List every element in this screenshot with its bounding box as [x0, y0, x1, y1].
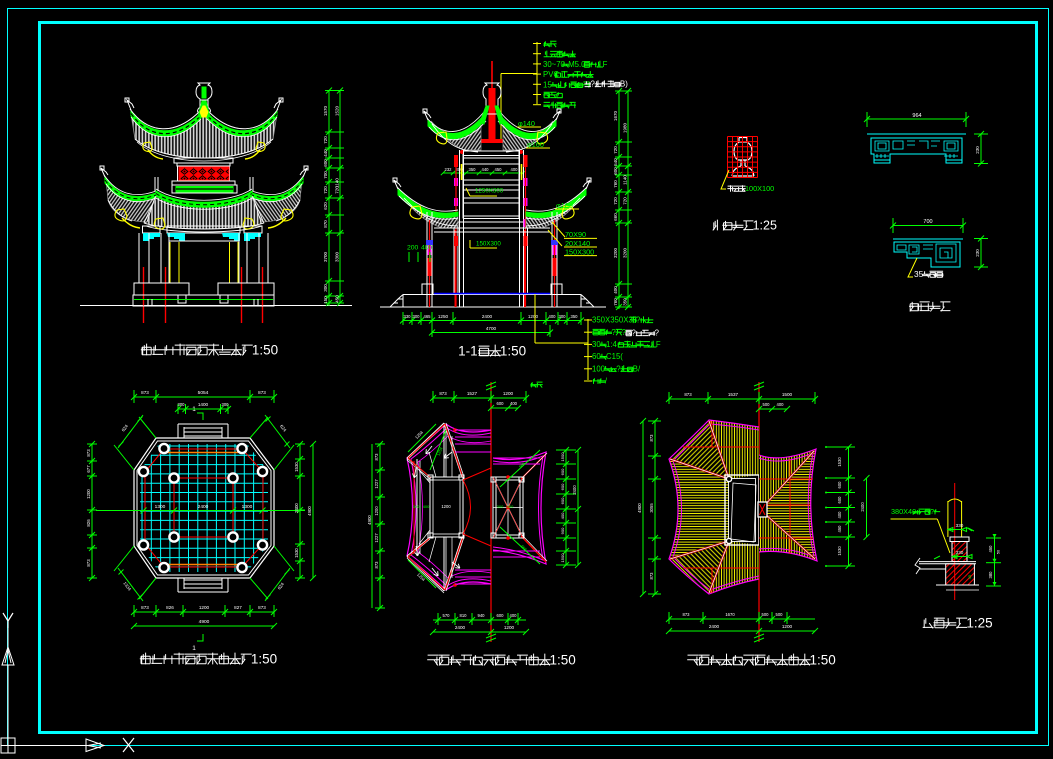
svg-text:4900: 4900 — [367, 515, 372, 525]
svg-text:35: 35 — [914, 269, 924, 279]
svg-text:400: 400 — [549, 314, 557, 319]
svg-text:150X300: 150X300 — [476, 240, 501, 247]
svg-text:660: 660 — [613, 213, 618, 221]
svg-text:300: 300 — [559, 314, 567, 319]
svg-text:450: 450 — [837, 525, 842, 533]
svg-text:1200: 1200 — [86, 489, 91, 499]
svg-text:350: 350 — [571, 314, 579, 319]
svg-text:1670: 1670 — [725, 612, 735, 617]
svg-text:1530: 1530 — [837, 546, 842, 556]
svg-text:B): B) — [620, 80, 628, 89]
svg-text:1140: 1140 — [623, 175, 628, 185]
svg-text:4900: 4900 — [307, 506, 312, 516]
svg-text:300: 300 — [507, 504, 514, 509]
svg-text:1250X300: 1250X300 — [475, 187, 504, 194]
svg-text:826: 826 — [166, 605, 174, 610]
svg-text:3300: 3300 — [335, 251, 340, 262]
svg-text:1530: 1530 — [837, 457, 842, 467]
svg-text:1200: 1200 — [441, 504, 451, 509]
svg-text:100X100: 100X100 — [745, 184, 774, 193]
svg-text:540: 540 — [613, 158, 618, 166]
svg-text:900: 900 — [560, 527, 565, 534]
svg-text:200: 200 — [407, 245, 419, 252]
svg-text:45: 45 — [968, 575, 972, 579]
svg-text:3055: 3055 — [649, 503, 654, 513]
svg-text:232: 232 — [445, 167, 453, 172]
svg-text:1: 1 — [192, 645, 196, 652]
svg-text:380: 380 — [988, 571, 993, 579]
svg-text:500: 500 — [762, 612, 770, 617]
svg-text:440: 440 — [482, 167, 490, 172]
svg-text:400: 400 — [423, 504, 430, 509]
svg-text:1200: 1200 — [503, 391, 514, 396]
svg-text:873: 873 — [374, 561, 379, 569]
svg-text:350: 350 — [469, 167, 477, 172]
svg-text:150X300: 150X300 — [565, 247, 594, 256]
svg-text:2400: 2400 — [482, 314, 493, 319]
svg-text:1:50: 1:50 — [252, 342, 278, 357]
svg-text:4900: 4900 — [199, 619, 210, 625]
svg-text:600: 600 — [497, 401, 505, 406]
svg-text:760: 760 — [613, 180, 618, 188]
svg-text:1227: 1227 — [374, 479, 379, 489]
svg-text:465: 465 — [424, 314, 432, 319]
svg-text:2400: 2400 — [860, 502, 865, 512]
svg-text:1200: 1200 — [199, 605, 210, 610]
svg-text:810: 810 — [460, 613, 468, 618]
svg-text:1400: 1400 — [198, 402, 209, 407]
svg-text:720: 720 — [323, 186, 328, 194]
svg-text:4900: 4900 — [637, 503, 642, 513]
svg-text:2400: 2400 — [455, 625, 466, 630]
svg-text:150: 150 — [323, 296, 328, 304]
svg-text:300: 300 — [178, 402, 186, 407]
svg-text:440: 440 — [323, 149, 328, 157]
svg-text:400: 400 — [777, 402, 785, 407]
svg-text:1:50: 1:50 — [550, 652, 576, 667]
svg-text:F: F — [656, 340, 661, 349]
svg-text:720: 720 — [613, 146, 618, 154]
svg-text:1:25: 1:25 — [966, 615, 992, 630]
svg-text:873: 873 — [86, 559, 91, 567]
svg-text:873: 873 — [649, 572, 654, 580]
svg-text:720: 720 — [323, 136, 328, 144]
svg-text:50: 50 — [997, 550, 1001, 554]
svg-text:1200: 1200 — [504, 625, 515, 630]
svg-text:2400: 2400 — [198, 504, 209, 510]
svg-text:380X40: 380X40 — [891, 507, 916, 516]
svg-text:400: 400 — [511, 167, 519, 172]
svg-text:1980: 1980 — [623, 122, 628, 133]
svg-text:3700: 3700 — [323, 251, 328, 262]
svg-text:400: 400 — [560, 512, 565, 519]
svg-text:5054: 5054 — [198, 390, 209, 396]
svg-text:700: 700 — [323, 171, 328, 179]
svg-text:400: 400 — [510, 401, 518, 406]
svg-text:873: 873 — [86, 449, 91, 457]
svg-text:1:50: 1:50 — [500, 343, 526, 358]
svg-text:720: 720 — [335, 186, 340, 194]
svg-text:873: 873 — [439, 391, 447, 396]
svg-text:1500: 1500 — [560, 452, 565, 462]
svg-text:600: 600 — [323, 159, 328, 167]
svg-text:600: 600 — [613, 167, 618, 175]
svg-text:826: 826 — [86, 519, 91, 527]
svg-text:600: 600 — [560, 468, 565, 475]
svg-text:940: 940 — [478, 613, 486, 618]
svg-text:1570: 1570 — [323, 105, 328, 116]
svg-text:1300: 1300 — [242, 504, 253, 510]
svg-text:300: 300 — [323, 284, 328, 292]
svg-text:700: 700 — [923, 219, 932, 225]
svg-text:1537: 1537 — [728, 392, 739, 397]
svg-text:964: 964 — [912, 113, 921, 119]
svg-text:230: 230 — [975, 249, 980, 257]
svg-text:350: 350 — [623, 298, 628, 306]
svg-text:?: ? — [930, 507, 934, 516]
svg-text:873: 873 — [649, 434, 654, 442]
svg-text:1:25: 1:25 — [753, 219, 777, 233]
svg-text:1-1: 1-1 — [458, 343, 478, 358]
svg-text:873: 873 — [683, 612, 691, 617]
svg-text:760: 760 — [613, 298, 618, 306]
svg-text:1200: 1200 — [782, 624, 793, 629]
svg-text:873: 873 — [141, 390, 149, 395]
svg-text:600: 600 — [837, 481, 842, 489]
svg-text:500: 500 — [776, 612, 784, 617]
svg-text:3200: 3200 — [613, 247, 618, 258]
svg-text:1527: 1527 — [467, 391, 478, 396]
svg-text:600: 600 — [560, 497, 565, 504]
svg-text:1300: 1300 — [155, 504, 166, 510]
svg-text:450: 450 — [988, 545, 993, 553]
svg-text:330: 330 — [404, 314, 412, 319]
svg-text:1250: 1250 — [438, 314, 449, 319]
svg-text:500: 500 — [763, 402, 771, 407]
svg-text:1200: 1200 — [374, 506, 379, 516]
svg-text:?: ? — [655, 329, 660, 338]
svg-text:600: 600 — [837, 496, 842, 504]
svg-text:873: 873 — [684, 392, 692, 397]
svg-text:C15(: C15( — [606, 352, 623, 361]
svg-text:400: 400 — [837, 511, 842, 519]
svg-text:1:4: 1:4 — [606, 340, 618, 349]
svg-text:873: 873 — [258, 390, 266, 395]
svg-text:230: 230 — [975, 146, 980, 154]
svg-text:450: 450 — [495, 167, 503, 172]
svg-text:873: 873 — [374, 453, 379, 461]
svg-text:1520: 1520 — [335, 105, 340, 116]
svg-text:4700: 4700 — [486, 326, 497, 331]
svg-text:400: 400 — [613, 286, 618, 294]
svg-text:600: 600 — [560, 483, 565, 490]
svg-text:B/: B/ — [633, 364, 641, 373]
svg-text:450: 450 — [335, 295, 340, 303]
svg-text:1227: 1227 — [374, 533, 379, 543]
svg-text:300: 300 — [222, 402, 230, 407]
svg-text:1530: 1530 — [294, 548, 299, 558]
svg-text:2400: 2400 — [294, 503, 299, 513]
svg-text:400: 400 — [421, 245, 433, 252]
svg-text:1530: 1530 — [294, 462, 299, 472]
svg-text:300: 300 — [413, 504, 420, 509]
svg-text:2400: 2400 — [709, 624, 720, 629]
svg-text:873: 873 — [141, 605, 149, 610]
svg-text:300: 300 — [497, 504, 504, 509]
svg-text:873: 873 — [258, 605, 266, 610]
svg-text:300: 300 — [413, 314, 421, 319]
svg-text:1200: 1200 — [528, 314, 539, 319]
svg-text:570: 570 — [443, 613, 451, 618]
svg-text:330: 330 — [956, 523, 964, 528]
svg-text:3200: 3200 — [623, 247, 628, 258]
svg-text:677: 677 — [86, 465, 91, 473]
svg-text:720: 720 — [613, 197, 618, 205]
svg-text:M5.0: M5.0 — [568, 60, 586, 69]
svg-text:400: 400 — [510, 613, 518, 618]
svg-text:1:50: 1:50 — [810, 652, 836, 667]
svg-text:1500: 1500 — [560, 553, 565, 563]
svg-text:1500: 1500 — [782, 392, 793, 397]
svg-text:870: 870 — [323, 220, 328, 228]
svg-text:720: 720 — [623, 197, 628, 205]
svg-text:600: 600 — [497, 613, 505, 618]
svg-text:2400: 2400 — [572, 485, 577, 495]
svg-text:620: 620 — [323, 202, 328, 210]
svg-text:F: F — [603, 60, 608, 69]
svg-text:1670: 1670 — [613, 110, 618, 121]
svg-text:827: 827 — [234, 605, 242, 610]
svg-text:1:50: 1:50 — [251, 651, 277, 666]
